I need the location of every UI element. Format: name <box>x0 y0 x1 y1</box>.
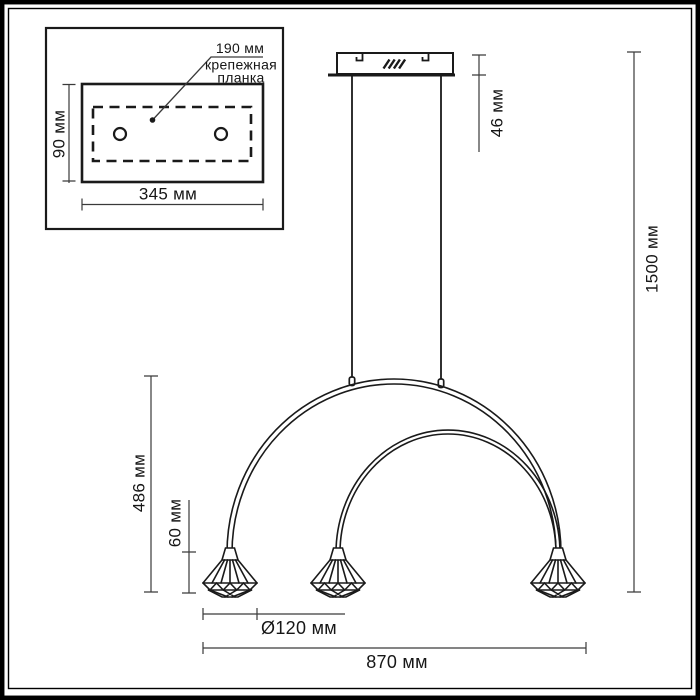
label-overall-width: 870 мм <box>366 653 428 671</box>
mounting-hole-right <box>215 128 227 140</box>
arched-frame <box>227 379 561 553</box>
label-plate-height: 90 мм <box>51 110 68 159</box>
technical-drawing-pendant-lamp: 190 мм крепежная планка 90 мм 345 мм 46 … <box>0 0 700 700</box>
mounting-hole-left <box>114 128 126 140</box>
label-arc-height: 486 мм <box>131 454 148 512</box>
label-shade-height: 60 мм <box>167 499 184 548</box>
outer-arc-outline-1 <box>227 379 561 553</box>
frame-inner <box>9 9 692 689</box>
lampshade-right <box>531 548 585 597</box>
dim-line-1500 <box>627 52 641 592</box>
dim-line-46 <box>472 55 486 152</box>
line-work <box>0 0 700 700</box>
label-canopy-height: 46 мм <box>489 89 506 138</box>
label-shade-diameter: Ø120 мм <box>261 619 337 637</box>
lampshade-left <box>203 548 257 597</box>
leader-dot <box>150 117 156 123</box>
lampshade-middle <box>311 548 365 597</box>
label-hole-spacing: 190 мм <box>216 41 264 55</box>
canopy-body <box>337 53 453 74</box>
inner-arc-outline-1 <box>336 430 560 553</box>
label-mounting-plate-line2: планка <box>205 71 277 84</box>
label-overall-height: 1500 мм <box>644 225 661 293</box>
ceiling-canopy <box>328 53 455 75</box>
label-plate-width: 345 мм <box>139 186 197 203</box>
label-mounting-plate: крепежная планка <box>205 59 277 84</box>
suspension-cables <box>349 77 443 388</box>
outer-arc-outline-2 <box>232 384 556 553</box>
